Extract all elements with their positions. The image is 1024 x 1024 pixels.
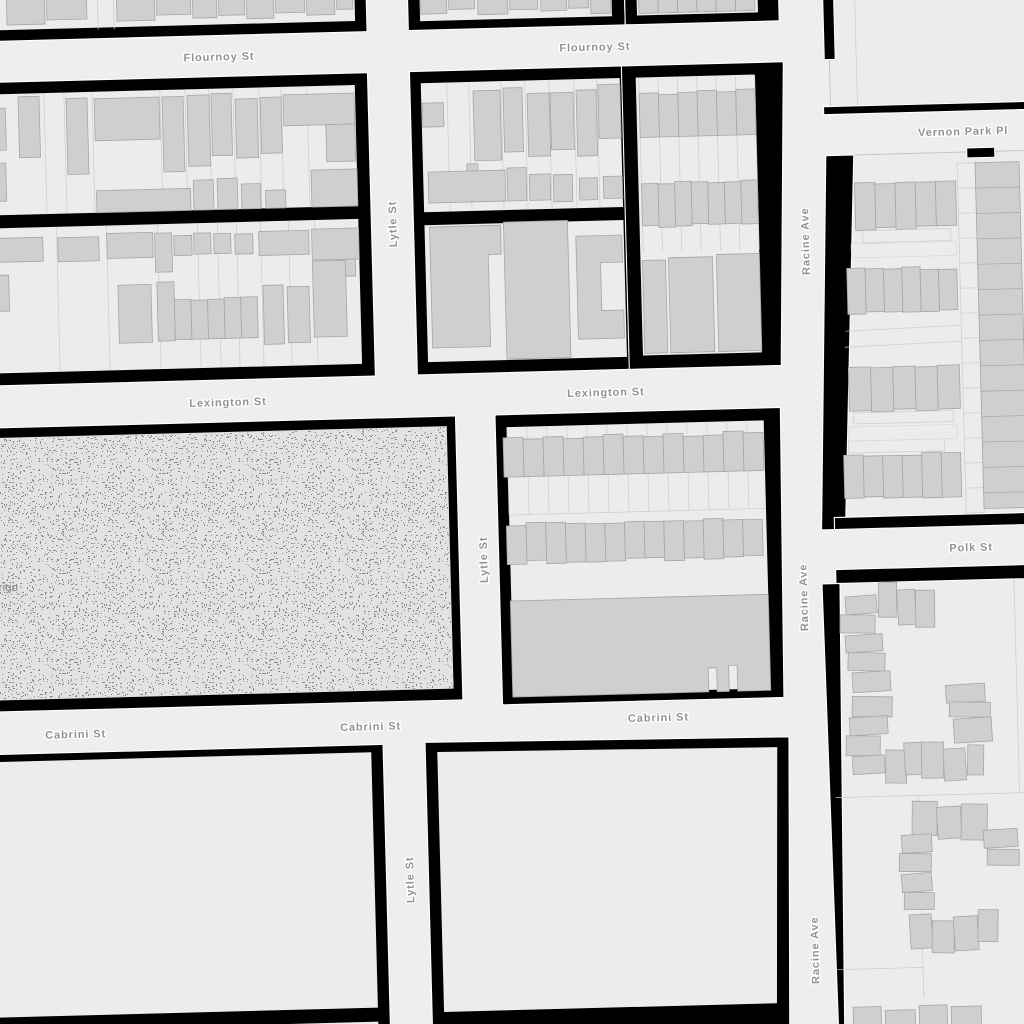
svg-text:Racine Ave: Racine Ave	[799, 207, 813, 275]
svg-text:Arrigo: Arrigo	[0, 582, 18, 594]
svg-text:Cabrini St: Cabrini St	[45, 728, 106, 742]
svg-text:Vernon Park Pl: Vernon Park Pl	[918, 125, 1009, 139]
svg-text:Cabrini St: Cabrini St	[340, 720, 401, 734]
svg-text:Flournoy St: Flournoy St	[559, 41, 630, 55]
svg-text:Lytle St: Lytle St	[478, 536, 491, 583]
svg-text:Racine Ave: Racine Ave	[809, 916, 823, 984]
svg-text:Polk St: Polk St	[949, 541, 993, 554]
svg-text:Cabrini St: Cabrini St	[628, 711, 689, 725]
svg-text:Lytle St: Lytle St	[387, 201, 400, 248]
svg-text:Racine Ave: Racine Ave	[797, 563, 811, 631]
svg-text:Lytle St: Lytle St	[404, 856, 417, 903]
svg-text:Flournoy St: Flournoy St	[183, 51, 254, 65]
svg-text:Lexington St: Lexington St	[567, 386, 645, 400]
svg-text:Lexington St: Lexington St	[189, 396, 267, 410]
